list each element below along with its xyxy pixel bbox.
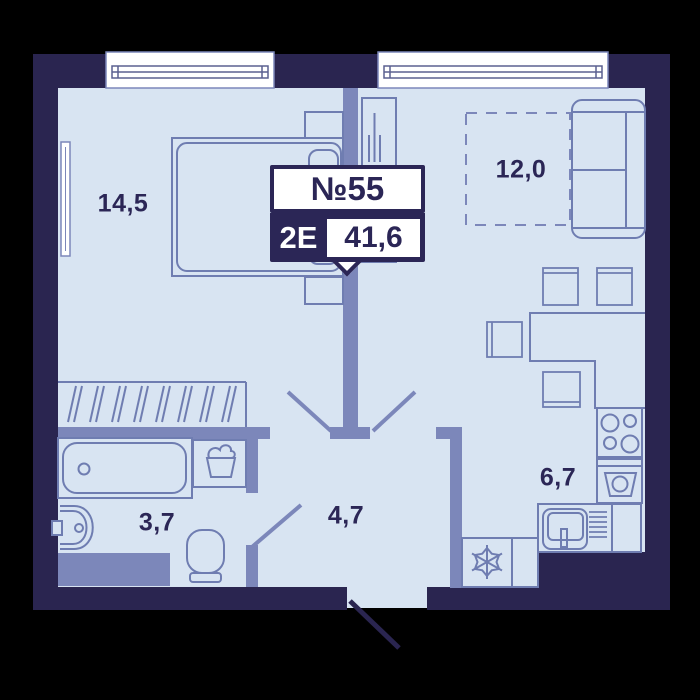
entrance-door-leaf bbox=[350, 601, 399, 648]
unit-number: №55 bbox=[270, 165, 425, 213]
bedroom-area-label: 14,5 bbox=[98, 190, 149, 219]
faucet bbox=[52, 521, 62, 535]
hall-area-label: 4,7 bbox=[328, 502, 364, 531]
kitchen-area-label: 6,7 bbox=[540, 464, 576, 493]
unit-area: 41,6 bbox=[327, 219, 420, 257]
window-top-left bbox=[106, 52, 274, 88]
floorplan-drawing bbox=[0, 0, 700, 700]
floorplan: 14,5 12,0 6,7 4,7 3,7 №55 2Е 41,6 bbox=[0, 0, 700, 700]
living-area-label: 12,0 bbox=[496, 156, 547, 185]
badge-bottom-row: 2Е 41,6 bbox=[270, 213, 425, 262]
entrance-opening bbox=[347, 587, 427, 608]
unit-badge[interactable]: №55 2Е 41,6 bbox=[270, 165, 425, 262]
unit-type: 2Е bbox=[270, 213, 327, 262]
bathroom-area-label: 3,7 bbox=[139, 509, 175, 538]
window-left bbox=[61, 142, 70, 256]
window-top-right bbox=[378, 52, 608, 88]
bathroom-cabinet-block bbox=[58, 553, 170, 586]
